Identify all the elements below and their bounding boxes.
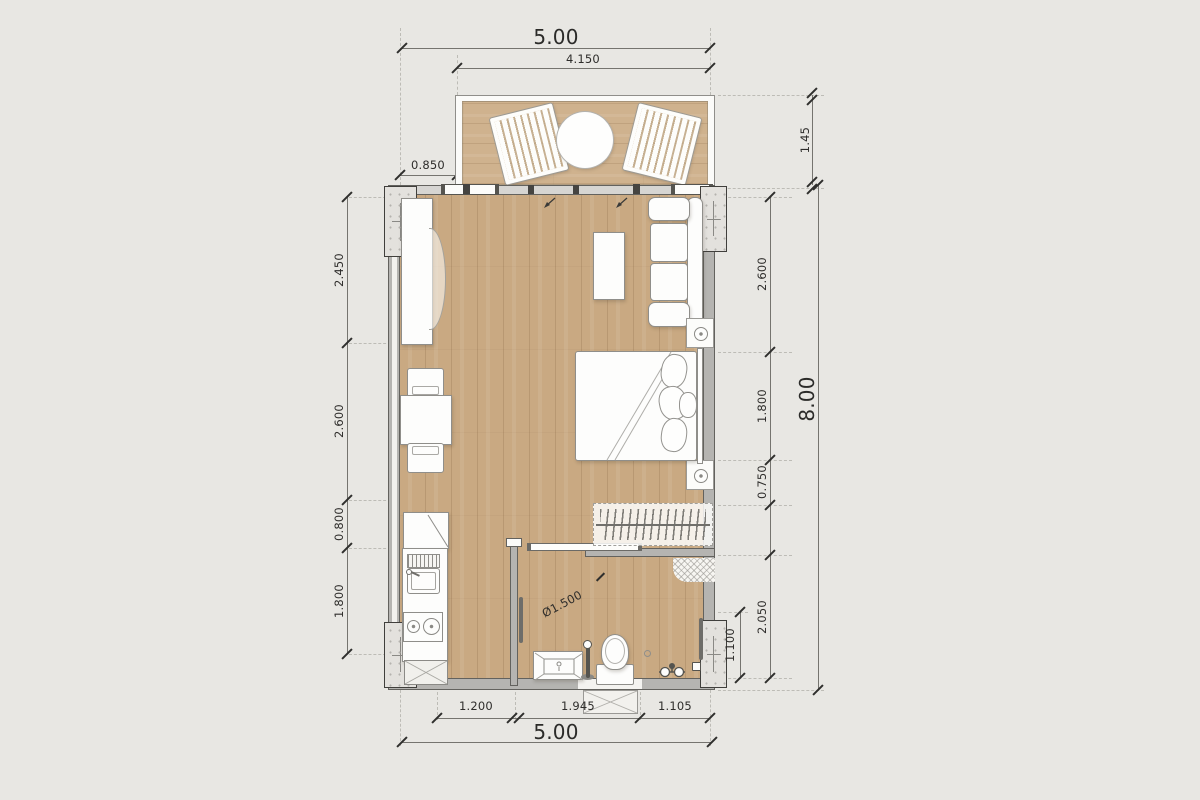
extension-line (710, 28, 711, 95)
dim-label-top-inner: 4.150 (553, 52, 613, 66)
dim-line-balcony-depth (812, 95, 813, 185)
dim-line-left (347, 197, 348, 654)
dim-label-bottom-1: 1.200 (446, 699, 506, 713)
dim-label-bottom-total: 5.00 (511, 720, 601, 744)
dim-line-top-inner (457, 68, 710, 69)
dim-label-right-1: 2.600 (755, 244, 769, 304)
extension-line (718, 197, 792, 198)
dim-line-bottom-inner (437, 718, 710, 719)
door-mullion (633, 184, 640, 194)
vanity-basin-lines (534, 652, 584, 681)
dim-label-left-4: 1.800 (332, 571, 346, 631)
shower-column (586, 646, 590, 678)
wall-valve (692, 662, 701, 671)
sofa (648, 195, 704, 328)
dim-label-height-total: 8.00 (795, 354, 819, 444)
right-wall (703, 185, 715, 690)
coffee-table (593, 232, 625, 300)
stove-burner (423, 618, 440, 635)
extension-line (718, 352, 792, 353)
headboard (697, 348, 703, 464)
table-lamp (694, 469, 708, 483)
hanging-rail (596, 524, 710, 526)
dim-label-offset-left: 0.850 (398, 158, 458, 172)
extension-line (718, 555, 792, 556)
shaft-cross (405, 661, 447, 684)
dim-line-right (770, 197, 771, 678)
extension-line (718, 690, 824, 691)
chair-backrest (412, 446, 439, 455)
shower-mat (673, 558, 715, 582)
shaft-box (404, 660, 448, 685)
partition-end-cap (506, 538, 522, 547)
pillow (679, 392, 697, 418)
shower-head (583, 640, 592, 649)
left-window-wall (388, 185, 400, 690)
dim-label-right-2: 1.800 (755, 376, 769, 436)
column (700, 186, 727, 252)
dim-label-right-3: 0.750 (755, 452, 769, 512)
sofa-cushion (650, 223, 688, 262)
extension-line (457, 55, 458, 95)
dim-label-balcony-depth: 1.45 (798, 110, 812, 170)
sliding-door-panel (441, 184, 499, 195)
toilet-seat (605, 638, 625, 664)
dining-table (400, 395, 452, 445)
dim-label-right-4: 2.050 (755, 587, 769, 647)
slide-direction-arrow (615, 197, 629, 209)
dim-label-bottom-2: 1.945 (548, 699, 608, 713)
dish-rack (407, 554, 440, 568)
stove-burner (407, 620, 420, 633)
sofa-cushion (650, 263, 688, 301)
sofa-armrest (648, 302, 690, 327)
door-mullion (463, 184, 470, 194)
slide-direction-arrow (543, 197, 557, 209)
fridge (403, 512, 449, 549)
extension-line (718, 612, 748, 613)
door-mullion (573, 185, 579, 194)
table-lamp (694, 327, 708, 341)
extension-line (718, 678, 792, 679)
extension-line (400, 690, 401, 746)
floor-drain (644, 650, 651, 657)
dim-line-right-1100 (740, 612, 741, 678)
bed (575, 348, 703, 464)
door-mullion (528, 185, 534, 194)
balcony-round-table (557, 112, 613, 168)
grab-bar (699, 618, 703, 660)
toilet-bowl (601, 634, 629, 670)
extension-line (349, 343, 391, 344)
shower-valves (658, 658, 686, 682)
bathroom-partition-wall (510, 545, 518, 686)
extension-line (718, 188, 824, 189)
dining-chair (407, 443, 444, 473)
floor-plan-canvas: 5.00 4.150 0.850 1.45 2.450 2.600 0.800 … (0, 0, 1200, 800)
dim-label-right-5: 1.100 (723, 615, 737, 675)
dim-label-left-1: 2.450 (332, 240, 346, 300)
sofa-armrest (648, 197, 690, 221)
dim-label-top-total: 5.00 (511, 25, 601, 49)
extension-line (349, 500, 391, 501)
chair-backrest (412, 386, 439, 395)
extension-line (349, 548, 391, 549)
dining-chair (407, 368, 444, 398)
dim-label-left-2: 2.600 (332, 391, 346, 451)
wardrobe-rack (593, 503, 713, 546)
dim-label-left-3: 0.800 (332, 494, 346, 554)
vanity-sink (533, 651, 583, 680)
dim-label-bottom-3: 1.105 (645, 699, 705, 713)
fridge-door-line (404, 513, 450, 550)
dim-line-offset-left (400, 175, 457, 176)
